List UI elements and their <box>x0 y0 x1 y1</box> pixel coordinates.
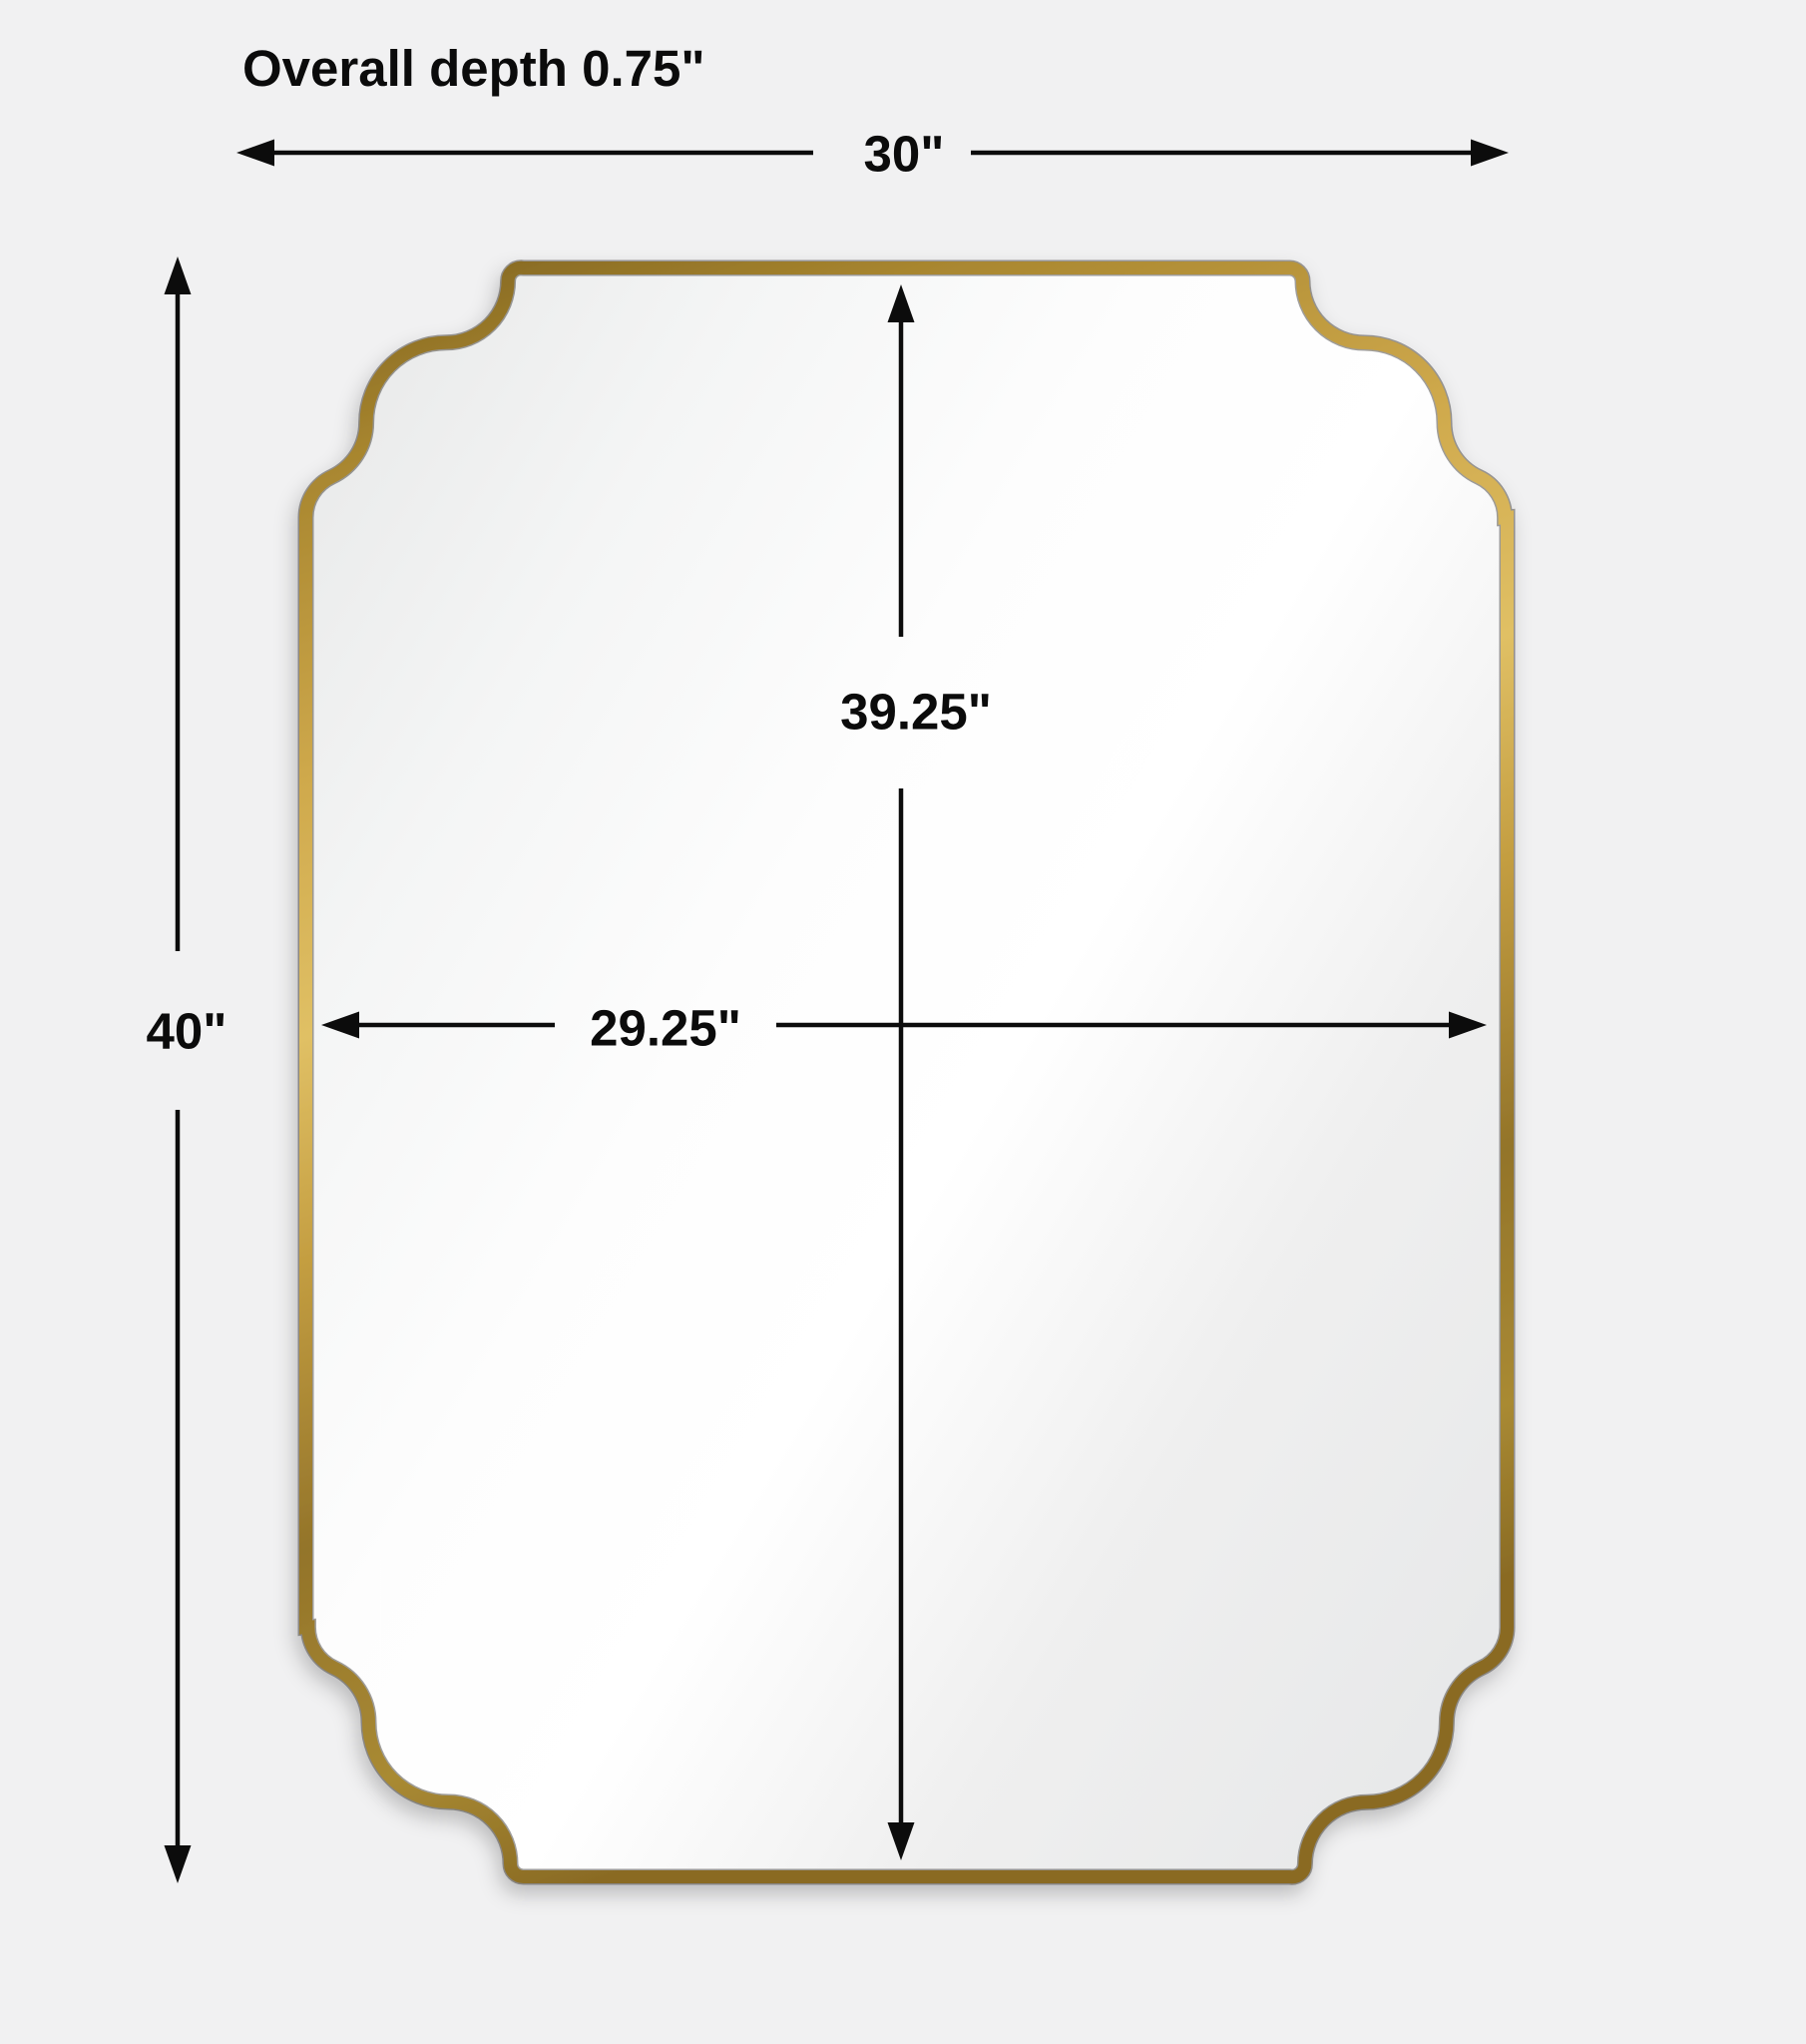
arrowhead-right-icon <box>1471 140 1509 167</box>
arrowhead-left-icon <box>236 140 274 167</box>
dim-overall-width: 30" <box>236 126 1509 183</box>
depth-note: Overall depth 0.75" <box>242 40 705 97</box>
mirror-face <box>306 267 1508 1876</box>
dim-label-overall-width: 30" <box>864 126 945 183</box>
dim-overall-height: 40" <box>147 256 227 1883</box>
diagram-canvas: 30" 40" 39.25" 29.25" Overall depth <box>0 0 1806 2044</box>
mirror <box>306 267 1508 1876</box>
dim-label-mirror-width: 29.25" <box>590 1000 741 1057</box>
arrowhead-down-icon <box>165 1845 192 1883</box>
dim-label-overall-height: 40" <box>147 1003 227 1060</box>
arrowhead-up-icon <box>165 256 192 294</box>
mirror-dimension-diagram: 30" 40" 39.25" 29.25" Overall depth <box>0 0 1806 2044</box>
dim-label-mirror-height: 39.25" <box>840 684 992 741</box>
